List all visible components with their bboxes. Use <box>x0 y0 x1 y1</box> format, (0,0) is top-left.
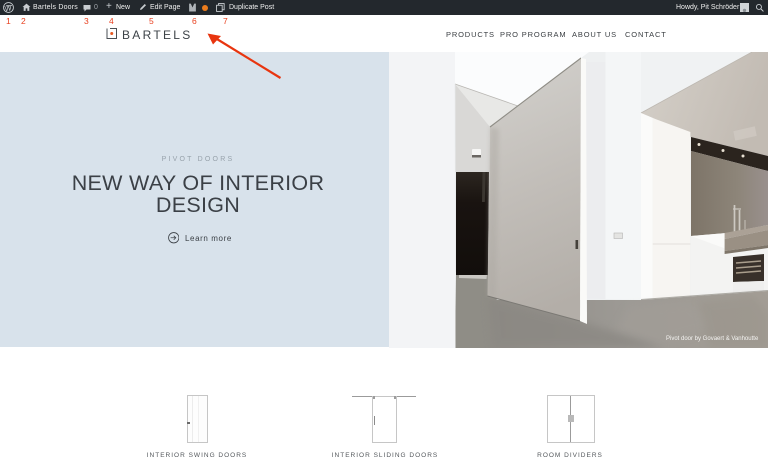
svg-text:Pivot door by Govaert & Vanhou: Pivot door by Govaert & Vanhoutte <box>666 336 759 342</box>
